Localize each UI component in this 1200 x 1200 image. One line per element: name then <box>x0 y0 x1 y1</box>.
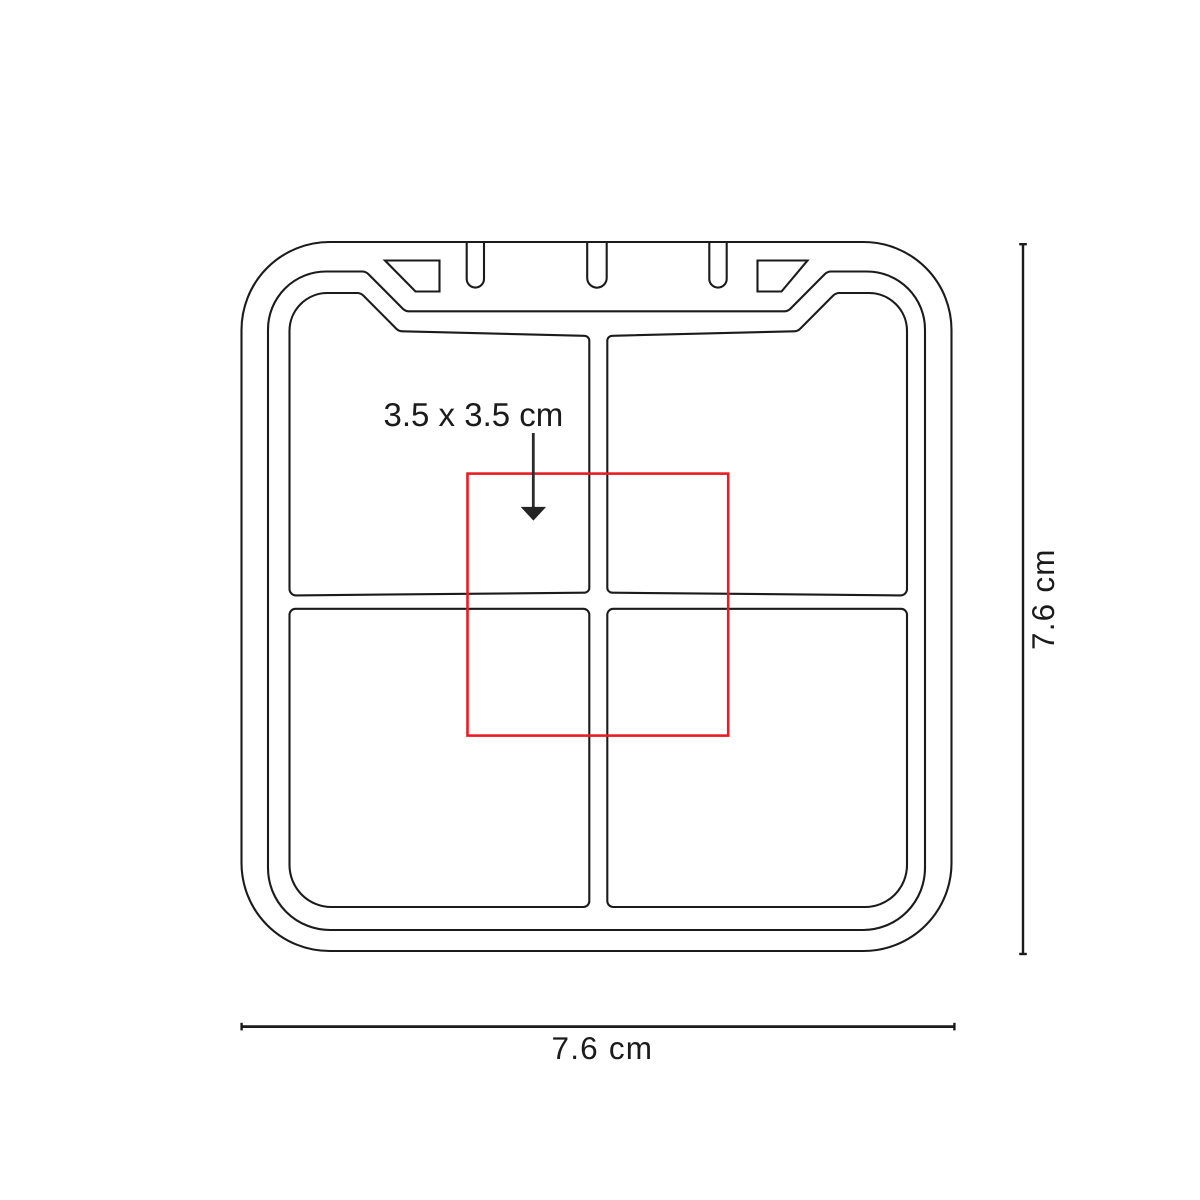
svg-text:7.6 cm: 7.6 cm <box>552 1030 654 1066</box>
svg-text:7.6 cm: 7.6 cm <box>1025 548 1061 650</box>
svg-text:3.5 x 3.5 cm: 3.5 x 3.5 cm <box>384 396 564 433</box>
